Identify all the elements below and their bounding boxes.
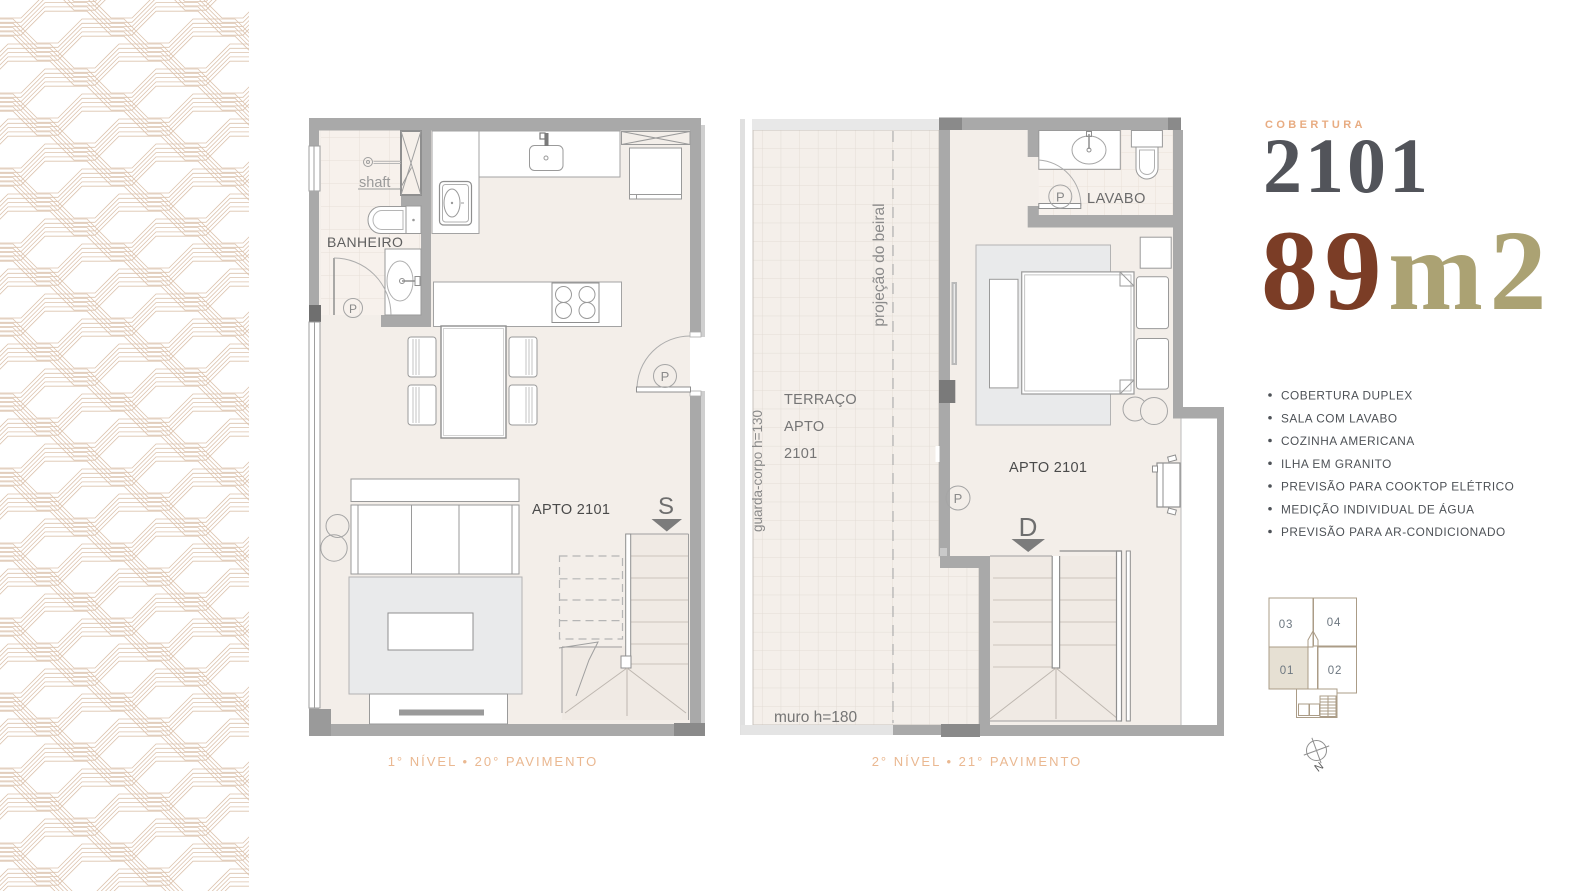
svg-text:1° NÍVEL • 20° PAVIMENTO: 1° NÍVEL • 20° PAVIMENTO [388, 754, 599, 769]
svg-text:LAVABO: LAVABO [1087, 191, 1146, 207]
svg-text:P: P [661, 369, 670, 384]
svg-text:muro h=180: muro h=180 [774, 709, 858, 726]
svg-text:2101: 2101 [784, 446, 817, 462]
svg-text:S: S [658, 493, 674, 520]
svg-text:TERRAÇO: TERRAÇO [784, 392, 857, 408]
svg-text:P: P [1056, 190, 1065, 205]
svg-text:02: 02 [1328, 665, 1342, 677]
svg-text:2° NÍVEL • 21° PAVIMENTO: 2° NÍVEL • 21° PAVIMENTO [872, 754, 1083, 769]
svg-text:COBERTURA DUPLEX: COBERTURA DUPLEX [1281, 389, 1413, 403]
svg-text:APTO 2101: APTO 2101 [1009, 460, 1087, 476]
svg-text:APTO: APTO [784, 419, 824, 435]
svg-text:ILHA EM GRANITO: ILHA EM GRANITO [1281, 457, 1392, 471]
svg-text:SALA COM LAVABO: SALA COM LAVABO [1281, 411, 1398, 425]
svg-text:2101: 2101 [1263, 122, 1431, 209]
svg-text:projeção do beiral: projeção do beiral [871, 203, 888, 326]
svg-text:P: P [954, 491, 963, 506]
svg-text:APTO 2101: APTO 2101 [532, 502, 610, 518]
svg-text:guarda-corpo h=130: guarda-corpo h=130 [750, 410, 765, 532]
svg-text:01: 01 [1280, 665, 1294, 677]
svg-text:P: P [349, 302, 357, 316]
svg-text:PREVISÃO PARA AR-CONDICIONADO: PREVISÃO PARA AR-CONDICIONADO [1281, 525, 1506, 539]
svg-text:03: 03 [1279, 619, 1293, 631]
svg-text:MEDIÇÃO INDIVIDUAL DE ÁGUA: MEDIÇÃO INDIVIDUAL DE ÁGUA [1281, 502, 1474, 516]
svg-text:04: 04 [1327, 617, 1341, 629]
svg-text:D: D [1019, 512, 1038, 542]
svg-text:BANHEIRO: BANHEIRO [327, 234, 403, 250]
svg-text:PREVISÃO PARA COOKTOP ELÉTRICO: PREVISÃO PARA COOKTOP ELÉTRICO [1281, 480, 1514, 494]
svg-text:89m2: 89m2 [1261, 207, 1553, 334]
svg-text:COZINHA AMERICANA: COZINHA AMERICANA [1281, 434, 1415, 448]
